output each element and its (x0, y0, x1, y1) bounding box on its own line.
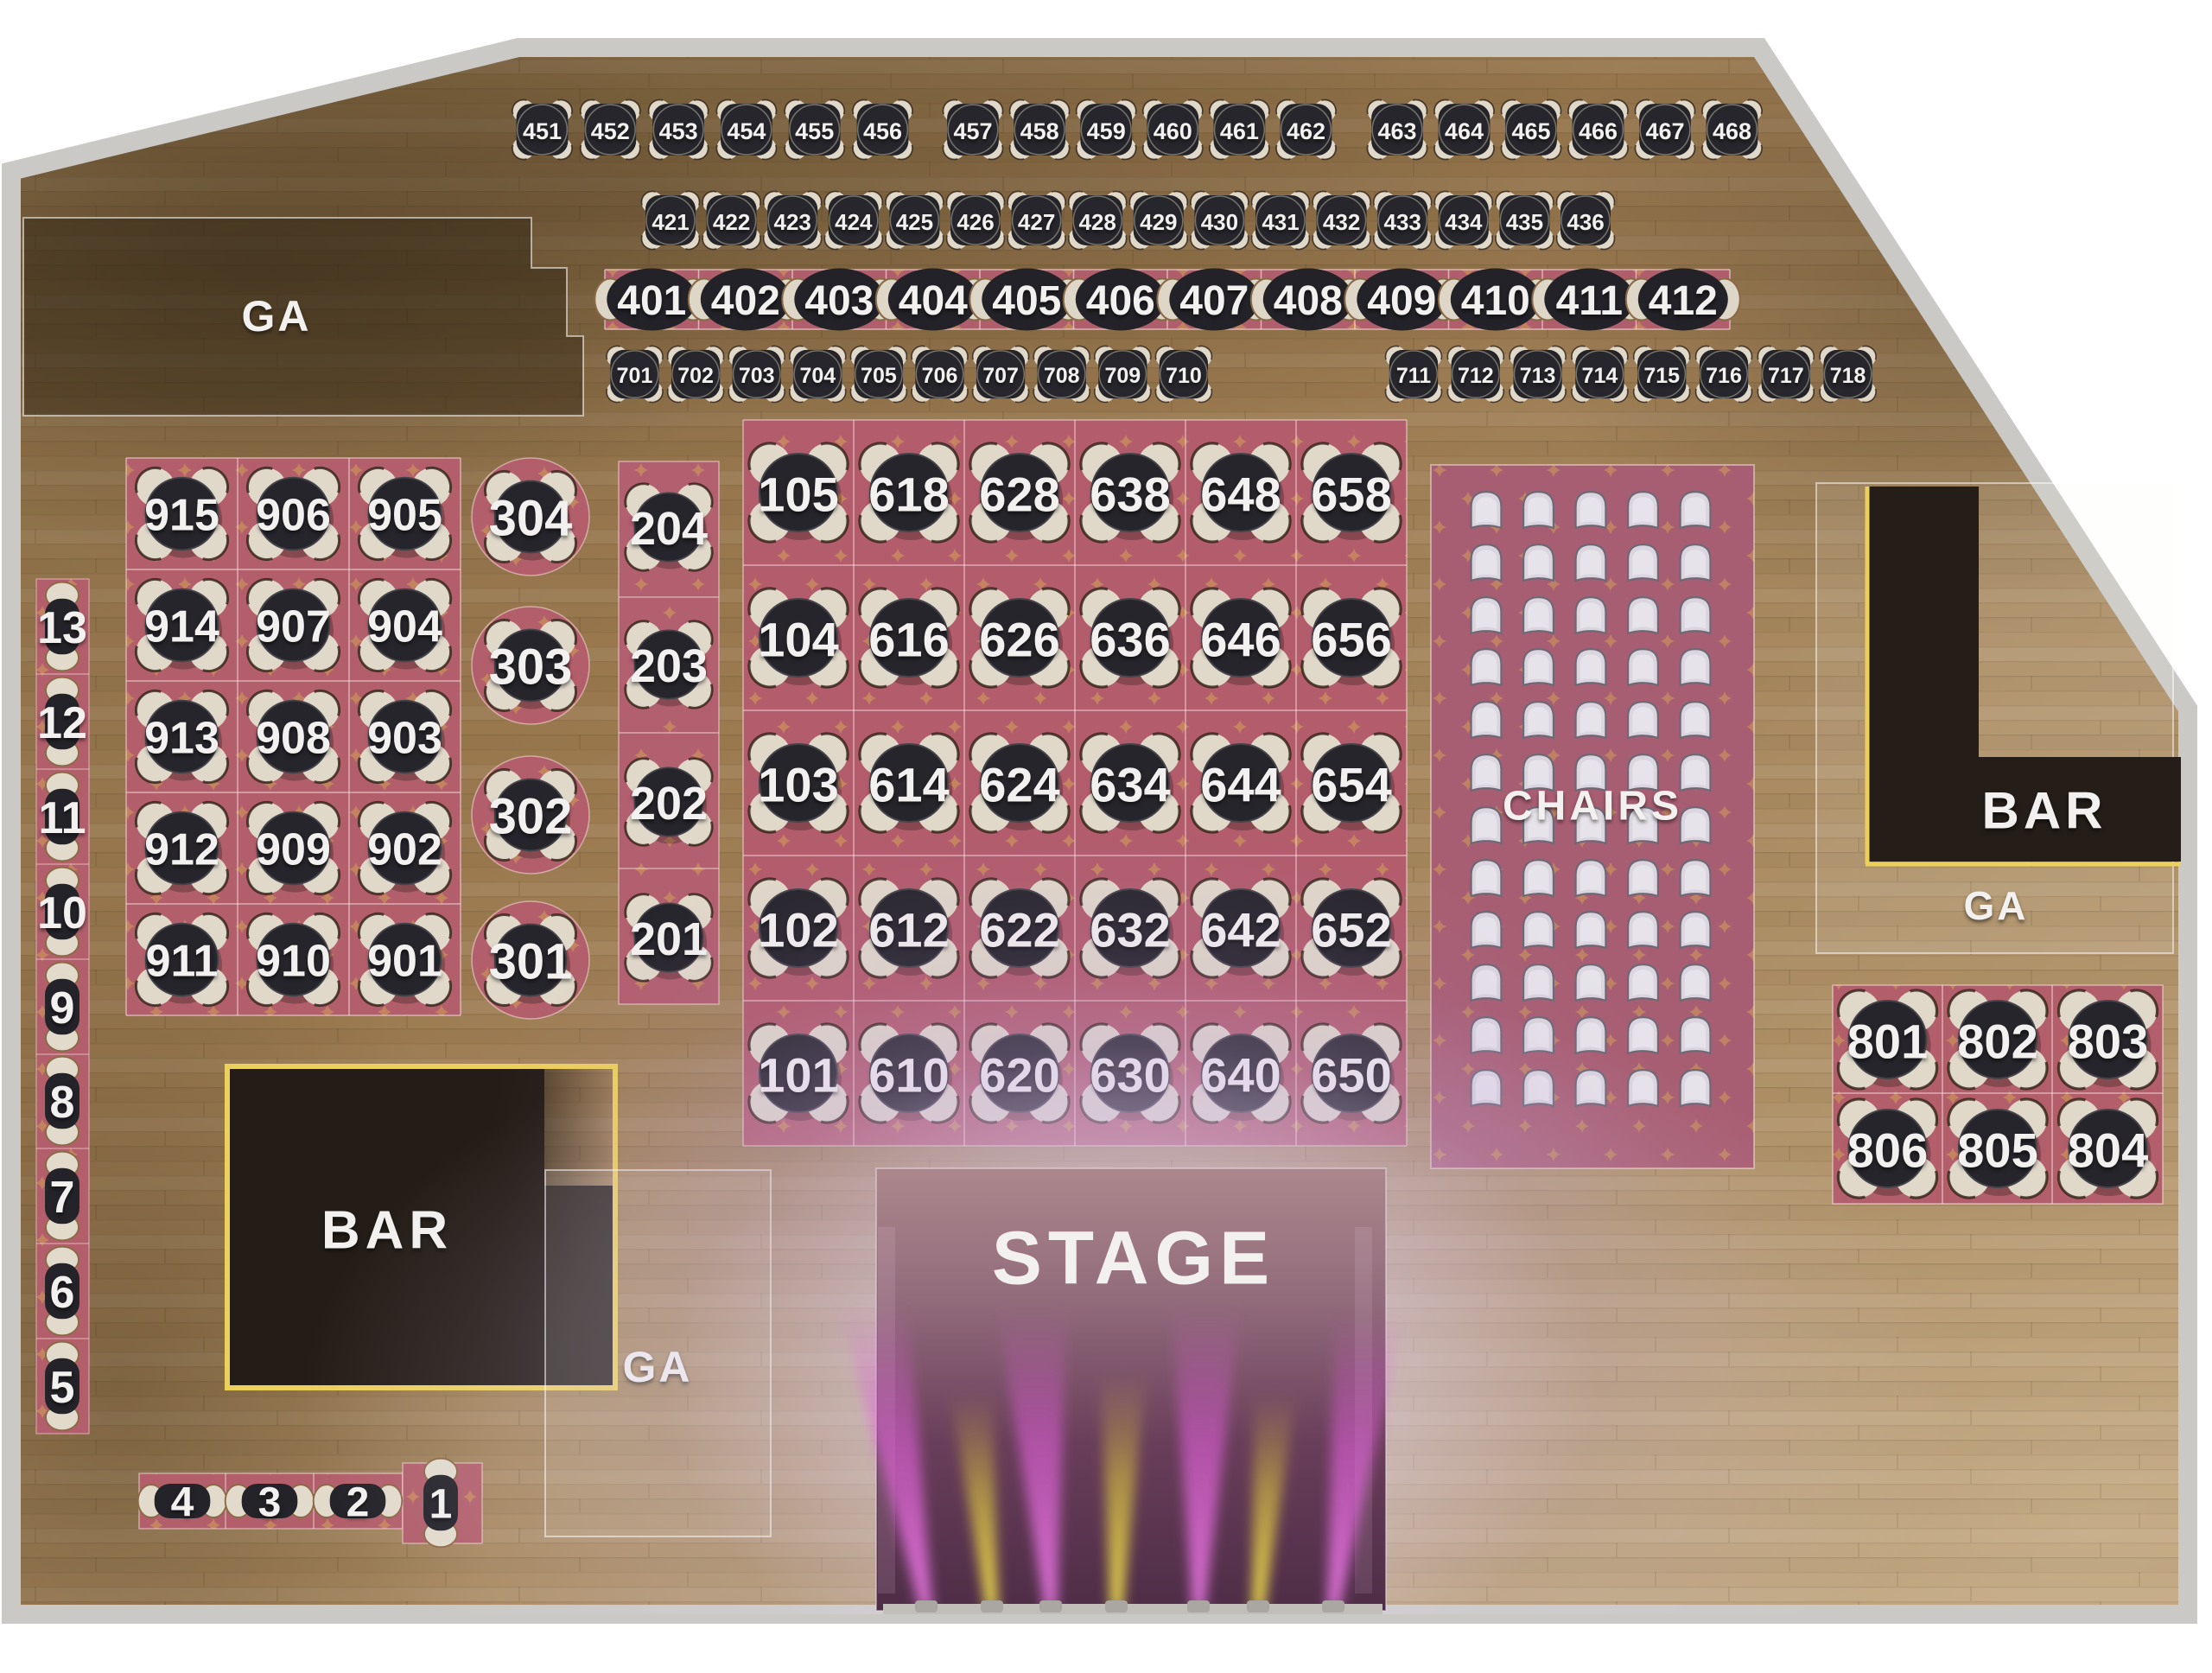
svg-text:636: 636 (1090, 613, 1170, 667)
svg-text:709: 709 (1104, 364, 1141, 388)
svg-text:11: 11 (39, 793, 86, 843)
svg-text:626: 626 (979, 613, 1059, 667)
svg-text:GA: GA (1964, 883, 2029, 928)
svg-text:913: 913 (144, 714, 219, 764)
svg-text:702: 702 (677, 364, 714, 388)
svg-text:459: 459 (1087, 118, 1126, 144)
svg-text:451: 451 (523, 118, 562, 144)
svg-text:3: 3 (258, 1480, 282, 1526)
svg-text:467: 467 (1645, 118, 1684, 144)
svg-text:6: 6 (50, 1268, 75, 1318)
svg-text:424: 424 (835, 209, 873, 235)
svg-text:455: 455 (795, 118, 834, 144)
svg-text:454: 454 (727, 118, 766, 144)
svg-text:CHAIRS: CHAIRS (1503, 784, 1682, 830)
svg-text:801: 801 (1847, 1015, 1928, 1069)
svg-text:903: 903 (367, 714, 442, 764)
svg-text:431: 431 (1262, 209, 1299, 235)
svg-text:712: 712 (1458, 364, 1494, 388)
svg-text:456: 456 (863, 118, 902, 144)
svg-text:466: 466 (1579, 118, 1618, 144)
svg-text:458: 458 (1020, 118, 1059, 144)
svg-text:432: 432 (1323, 209, 1360, 235)
svg-text:4: 4 (171, 1480, 194, 1526)
svg-text:303: 303 (489, 639, 573, 696)
svg-text:GA: GA (242, 292, 312, 340)
svg-text:404: 404 (899, 278, 968, 324)
svg-text:806: 806 (1847, 1123, 1928, 1178)
svg-text:656: 656 (1311, 613, 1391, 667)
svg-text:426: 426 (957, 209, 994, 235)
svg-text:713: 713 (1520, 364, 1556, 388)
svg-text:428: 428 (1079, 209, 1116, 235)
svg-text:614: 614 (868, 758, 949, 812)
svg-text:616: 616 (868, 613, 949, 667)
svg-text:805: 805 (1957, 1123, 2037, 1178)
svg-text:302: 302 (489, 789, 573, 845)
svg-text:408: 408 (1274, 278, 1343, 324)
svg-text:411: 411 (1556, 278, 1623, 324)
svg-text:434: 434 (1445, 209, 1483, 235)
svg-text:705: 705 (861, 364, 897, 388)
svg-text:716: 716 (1706, 364, 1742, 388)
svg-text:465: 465 (1511, 118, 1550, 144)
svg-text:908: 908 (256, 714, 331, 764)
svg-text:405: 405 (992, 278, 1061, 324)
svg-text:452: 452 (591, 118, 630, 144)
svg-text:648: 648 (1200, 468, 1281, 522)
svg-text:421: 421 (652, 209, 689, 235)
svg-text:909: 909 (256, 825, 331, 875)
svg-text:460: 460 (1154, 118, 1192, 144)
svg-text:658: 658 (1311, 468, 1391, 522)
svg-text:906: 906 (256, 491, 331, 541)
svg-text:203: 203 (630, 640, 708, 692)
svg-text:907: 907 (256, 602, 331, 652)
svg-text:912: 912 (144, 825, 219, 875)
svg-text:703: 703 (739, 364, 775, 388)
svg-text:9: 9 (50, 983, 75, 1034)
svg-text:910: 910 (256, 937, 331, 987)
svg-text:708: 708 (1044, 364, 1080, 388)
svg-text:202: 202 (630, 778, 708, 830)
svg-text:701: 701 (617, 364, 653, 388)
svg-text:401: 401 (617, 278, 686, 324)
svg-text:706: 706 (922, 364, 958, 388)
svg-text:103: 103 (758, 758, 838, 812)
svg-text:802: 802 (1957, 1015, 2037, 1069)
svg-text:433: 433 (1384, 209, 1421, 235)
svg-text:654: 654 (1311, 758, 1391, 812)
svg-text:105: 105 (758, 468, 838, 522)
svg-text:911: 911 (146, 937, 219, 987)
svg-text:430: 430 (1201, 209, 1238, 235)
svg-text:412: 412 (1649, 278, 1718, 324)
svg-text:12: 12 (37, 698, 87, 748)
svg-text:628: 628 (979, 468, 1059, 522)
svg-text:402: 402 (711, 278, 780, 324)
svg-text:618: 618 (868, 468, 949, 522)
svg-text:905: 905 (367, 491, 442, 541)
svg-text:717: 717 (1768, 364, 1804, 388)
svg-text:464: 464 (1445, 118, 1484, 144)
svg-text:704: 704 (799, 364, 836, 388)
svg-text:5: 5 (50, 1363, 75, 1413)
svg-text:710: 710 (1166, 364, 1202, 388)
svg-text:646: 646 (1200, 613, 1281, 667)
svg-text:436: 436 (1567, 209, 1604, 235)
svg-text:915: 915 (144, 491, 219, 541)
svg-text:425: 425 (896, 209, 933, 235)
svg-text:457: 457 (953, 118, 992, 144)
svg-text:410: 410 (1461, 278, 1530, 324)
svg-text:406: 406 (1086, 278, 1155, 324)
svg-text:204: 204 (630, 503, 708, 555)
svg-text:104: 104 (758, 613, 838, 667)
svg-text:901: 901 (367, 937, 442, 987)
svg-text:711: 711 (1396, 364, 1431, 388)
svg-text:407: 407 (1179, 278, 1249, 324)
svg-text:638: 638 (1090, 468, 1170, 522)
svg-text:STAGE: STAGE (992, 1217, 1275, 1301)
svg-text:707: 707 (982, 364, 1019, 388)
svg-text:304: 304 (489, 491, 573, 547)
svg-text:463: 463 (1377, 118, 1416, 144)
svg-text:914: 914 (144, 602, 219, 652)
svg-text:714: 714 (1582, 364, 1618, 388)
svg-text:409: 409 (1367, 278, 1436, 324)
svg-text:BAR: BAR (1982, 782, 2107, 840)
svg-text:902: 902 (367, 825, 442, 875)
svg-text:8: 8 (50, 1078, 75, 1128)
svg-text:423: 423 (774, 209, 811, 235)
svg-text:453: 453 (659, 118, 698, 144)
svg-text:634: 634 (1090, 758, 1170, 812)
svg-text:403: 403 (804, 278, 874, 324)
svg-text:462: 462 (1287, 118, 1325, 144)
svg-text:435: 435 (1506, 209, 1543, 235)
svg-text:422: 422 (713, 209, 750, 235)
svg-text:803: 803 (2068, 1015, 2148, 1069)
svg-text:904: 904 (367, 602, 442, 652)
svg-text:718: 718 (1830, 364, 1866, 388)
svg-text:644: 644 (1200, 758, 1281, 812)
svg-text:468: 468 (1713, 118, 1751, 144)
svg-text:10: 10 (37, 888, 87, 938)
svg-text:461: 461 (1220, 118, 1259, 144)
svg-text:427: 427 (1018, 209, 1055, 235)
svg-text:804: 804 (2068, 1123, 2148, 1178)
svg-text:7: 7 (50, 1173, 75, 1223)
svg-text:13: 13 (37, 603, 87, 653)
svg-text:624: 624 (979, 758, 1059, 812)
svg-text:429: 429 (1140, 209, 1177, 235)
svg-text:715: 715 (1643, 364, 1680, 388)
